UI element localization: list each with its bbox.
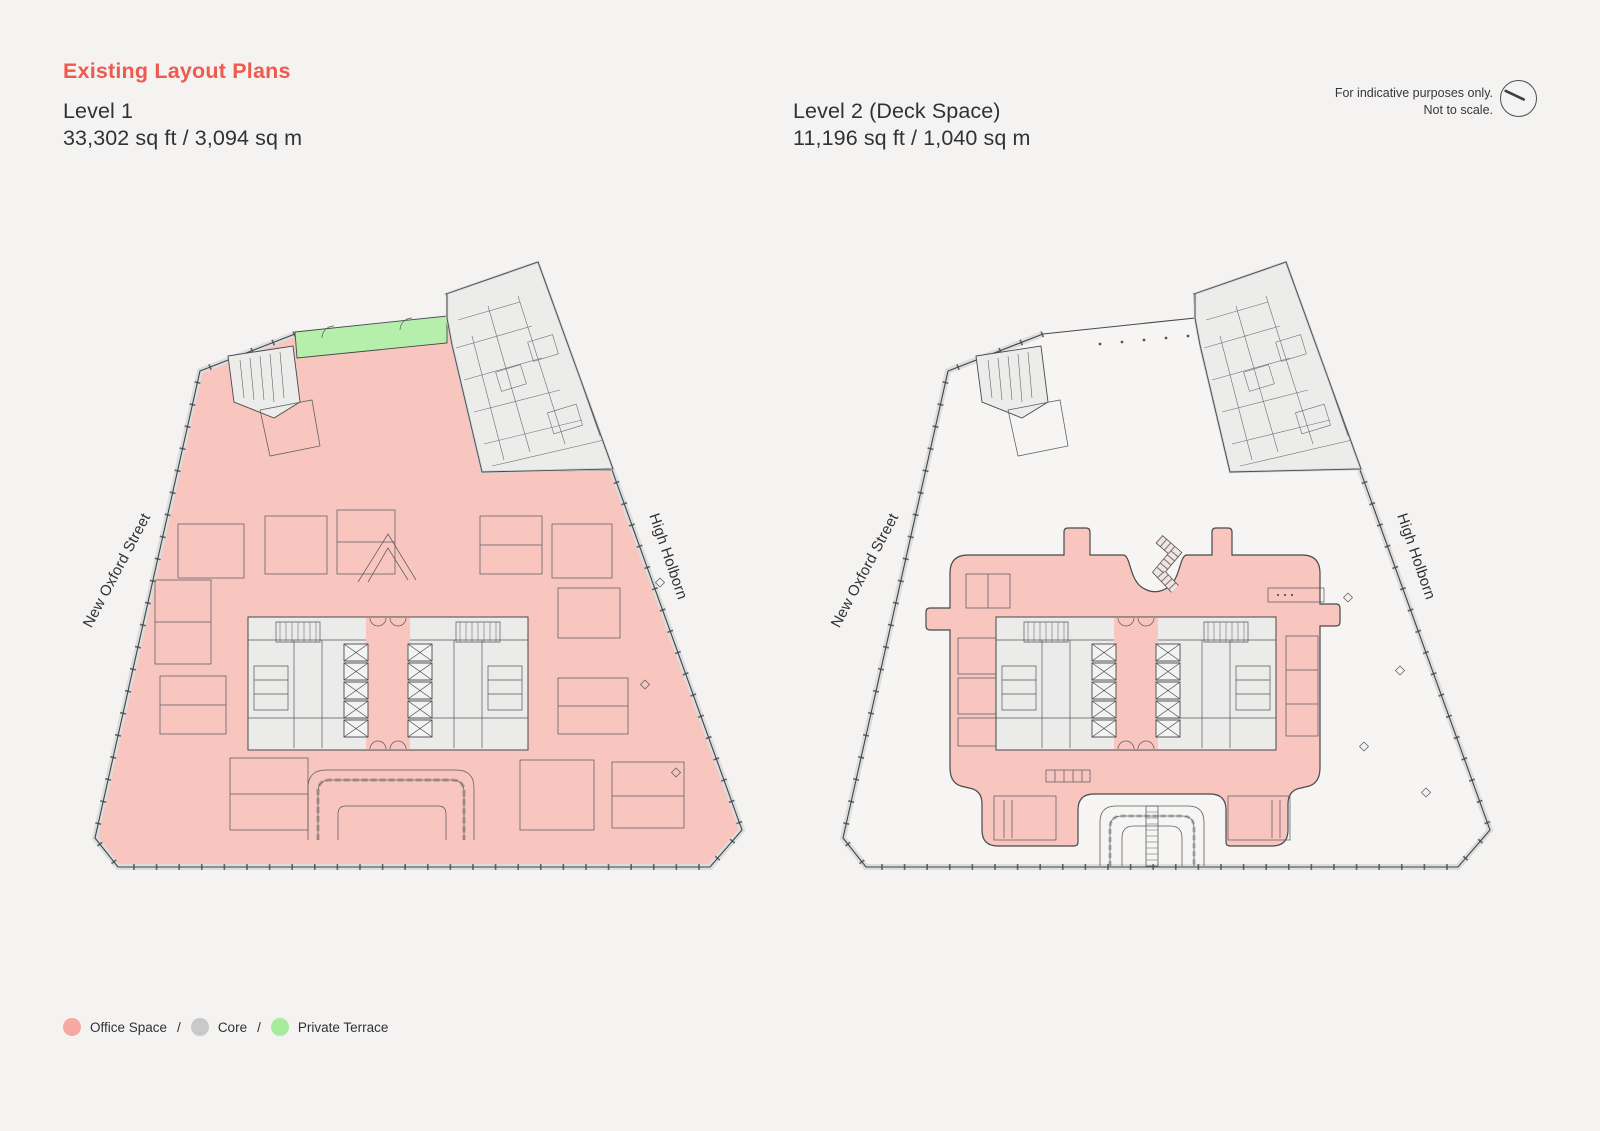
- level1-name: Level 1: [63, 98, 302, 125]
- level1-floorplan-svg: [60, 248, 760, 878]
- level2-area: 11,196 sq ft / 1,040 sq m: [793, 125, 1031, 152]
- level1-heading: Level 1 33,302 sq ft / 3,094 sq m: [63, 98, 302, 152]
- level1-floorplan: New Oxford Street High Holborn: [60, 248, 760, 878]
- level2-name: Level 2 (Deck Space): [793, 98, 1031, 125]
- level2-floorplan: New Oxford Street High Holborn: [808, 248, 1508, 878]
- legend: Office Space / Core / Private Terrace: [63, 1018, 388, 1036]
- legend-item-terrace: Private Terrace: [271, 1018, 389, 1036]
- core-swatch: [191, 1018, 209, 1036]
- page-title: Existing Layout Plans: [63, 59, 291, 84]
- feature-stair: [1159, 539, 1175, 589]
- disclaimer-line2: Not to scale.: [1335, 102, 1493, 119]
- legend-separator: /: [177, 1020, 181, 1035]
- legend-label-terrace: Private Terrace: [298, 1020, 389, 1035]
- private-terrace-swatch: [271, 1018, 289, 1036]
- legend-separator: /: [257, 1020, 261, 1035]
- disclaimer-line1: For indicative purposes only.: [1335, 85, 1493, 102]
- central-core: [248, 617, 528, 750]
- office-space-swatch: [63, 1018, 81, 1036]
- page: Existing Layout Plans Level 1 33,302 sq …: [0, 0, 1600, 1131]
- disclaimer: For indicative purposes only. Not to sca…: [1335, 85, 1493, 119]
- level2-heading: Level 2 (Deck Space) 11,196 sq ft / 1,04…: [793, 98, 1031, 152]
- central-core: [996, 617, 1276, 750]
- legend-item-core: Core: [191, 1018, 247, 1036]
- level2-floorplan-svg: [808, 248, 1508, 878]
- level1-area: 33,302 sq ft / 3,094 sq m: [63, 125, 302, 152]
- compass-icon: [1500, 80, 1537, 117]
- legend-item-office: Office Space: [63, 1018, 167, 1036]
- legend-label-office: Office Space: [90, 1020, 167, 1035]
- legend-label-core: Core: [218, 1020, 247, 1035]
